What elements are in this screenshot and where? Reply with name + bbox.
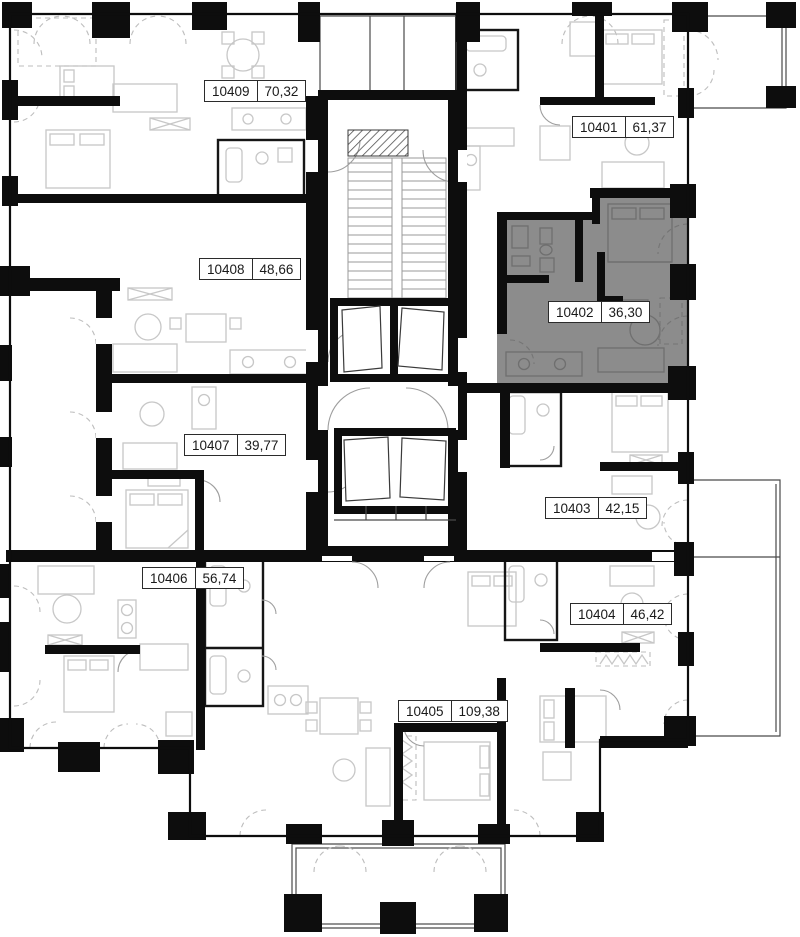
unit-id: 10406 [143, 568, 195, 588]
unit-area: 109,38 [451, 701, 507, 721]
unit-id: 10401 [573, 117, 625, 137]
unit-10409-furniture [18, 18, 306, 196]
unit-area: 39,77 [237, 435, 286, 455]
unit-area: 48,66 [252, 259, 301, 279]
unit-10408-furniture [113, 288, 310, 374]
unit-label-10402[interactable]: 10402 36,30 [548, 301, 650, 323]
unit-area: 46,42 [623, 604, 672, 624]
unit-10407-furniture [123, 387, 220, 548]
unit-label-10408[interactable]: 10408 48,66 [199, 258, 301, 280]
staircase [348, 130, 446, 298]
unit-label-10405[interactable]: 10405 109,38 [398, 700, 508, 722]
unit-area: 61,37 [625, 117, 674, 137]
unit-id: 10405 [399, 701, 451, 721]
unit-label-10406[interactable]: 10406 56,74 [142, 567, 244, 589]
floor-plan-drawing [0, 0, 800, 937]
unit-id: 10408 [200, 259, 252, 279]
unit-label-10407[interactable]: 10407 39,77 [184, 434, 286, 456]
elevator-upper-icon [330, 298, 456, 382]
balcony-right [688, 480, 780, 736]
unit-label-10404[interactable]: 10404 46,42 [570, 603, 672, 625]
unit-id: 10409 [205, 81, 257, 101]
elevator-lower-icon [334, 428, 456, 520]
unit-area: 36,30 [601, 302, 650, 322]
unit-id: 10403 [546, 498, 598, 518]
unit-id: 10404 [571, 604, 623, 624]
core [318, 16, 458, 556]
unit-id: 10407 [185, 435, 237, 455]
unit-area: 42,15 [598, 498, 647, 518]
unit-area: 70,32 [257, 81, 306, 101]
unit-label-10403[interactable]: 10403 42,15 [545, 497, 647, 519]
unit-area: 56,74 [195, 568, 244, 588]
floor-plan: 10409 70,32 10401 61,37 10408 48,66 1040… [0, 0, 800, 937]
terrace-left [70, 318, 96, 522]
unit-label-10409[interactable]: 10409 70,32 [204, 80, 306, 102]
unit-label-10401[interactable]: 10401 61,37 [572, 116, 674, 138]
unit-id: 10402 [549, 302, 601, 322]
